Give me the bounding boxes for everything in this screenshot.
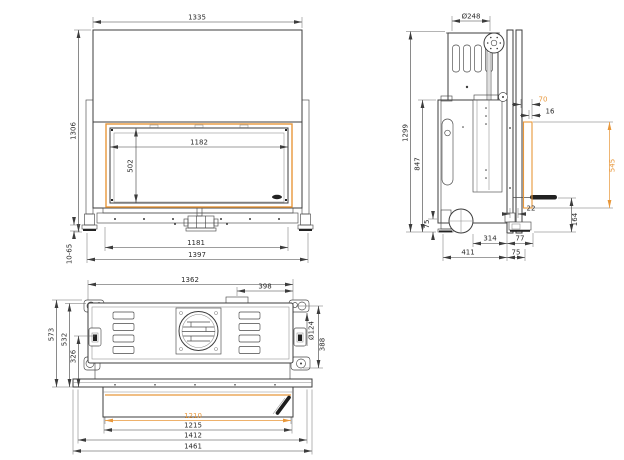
dim-label-top-front-depth: 326 [70, 349, 78, 363]
dim-label-frame-thickness: 16 [546, 108, 555, 116]
front-view: 1335 1306 1182 502 1181 [66, 14, 314, 265]
fan-assembly [176, 308, 221, 354]
dim-label-front-body-width: 1335 [188, 14, 206, 22]
dim-label-duct-diameter: Ø124 [308, 321, 316, 340]
dim-body-depth: 411 [443, 234, 507, 261]
side-front-foot [510, 230, 530, 232]
dim-label-frame-width: 1412 [184, 432, 202, 440]
handle-bar [530, 195, 557, 200]
dim-front-total-height: 1306 [70, 30, 92, 232]
pulley-wheel [484, 33, 504, 53]
dim-body-height: 847 [414, 100, 437, 232]
dim-label-glass-width: 1182 [190, 139, 208, 147]
dim-label-front-total-height: 1306 [70, 122, 78, 140]
dim-bottom-height: 164 [534, 198, 579, 232]
dim-label-feet-adjust-range: 10-65 [66, 244, 74, 264]
dim-duct-to-front: 314 [473, 234, 507, 261]
dim-label-top-glass-width: 1210 [184, 412, 202, 420]
dim-label-duct-to-front: 314 [483, 235, 497, 243]
center-foot-bracket [174, 208, 228, 231]
front-structure [82, 30, 313, 231]
side-rear-foot [439, 231, 452, 233]
dim-front-frame-depth: 77 [507, 233, 533, 247]
frame-plate-front [516, 30, 522, 233]
dim-label-bottom-height: 164 [571, 212, 579, 226]
dim-label-door-lift-travel: 545 [609, 159, 617, 172]
side-view: Ø248 1299 847 75 70 [402, 13, 617, 262]
side-structure [438, 30, 557, 233]
dim-label-glass-height: 502 [127, 159, 135, 172]
dim-label-door-width: 1215 [184, 422, 202, 430]
fan-plate [176, 308, 221, 354]
latch-right [294, 328, 306, 346]
dim-label-top-offset: 70 [539, 96, 548, 104]
dim-label-flue-diameter: Ø248 [462, 13, 481, 21]
technical-drawing: 1335 1306 1182 502 1181 [0, 0, 624, 460]
logo-badge [272, 195, 282, 199]
dim-flue-diameter: Ø248 [452, 13, 490, 32]
dim-label-total-depth: 573 [48, 328, 56, 341]
dim-label-flue-to-side: 398 [258, 283, 271, 291]
dim-label-side-depth: 388 [319, 338, 327, 351]
left-trim-rail [86, 100, 93, 214]
frame-plate-rear [507, 30, 513, 233]
dim-base-outer-width: 1397 [87, 233, 308, 263]
left-foot [83, 229, 96, 231]
dim-top-body-depth: 532 [61, 304, 87, 388]
front-frame-rail [73, 379, 312, 387]
latch-left [89, 328, 101, 346]
front-body-lower [93, 122, 302, 208]
dim-label-top-body-depth: 532 [61, 333, 69, 346]
dim-label-foot-height: 75 [423, 220, 431, 229]
dim-label-front-frame-depth: 77 [516, 235, 525, 243]
dim-duct-diameter: Ø124 [307, 313, 316, 346]
right-foot [299, 229, 312, 231]
dim-base-inner-width: 1181 [105, 227, 288, 251]
dim-front-depth: 75 [507, 249, 525, 262]
door-slide-track [524, 122, 533, 208]
dim-label-base-inner-width: 1181 [187, 239, 205, 247]
top-structure [73, 297, 312, 417]
dim-frame-thickness: 16 [520, 108, 555, 120]
dim-front-body-width: 1335 [93, 14, 302, 29]
dim-label-body-depth: 411 [461, 249, 474, 257]
dim-label-base-outer-width: 1397 [188, 251, 206, 259]
dim-label-side-total-height: 1299 [402, 124, 410, 142]
dim-label-bottom-gap: 22 [527, 205, 536, 213]
dim-foot-height: 75 [423, 211, 437, 240]
right-trim-rail [302, 100, 309, 214]
top-view: 1362 398 573 532 326 [48, 276, 327, 455]
dim-label-total-width: 1461 [184, 443, 202, 451]
dim-feet-adjust-range: 10-65 [66, 217, 81, 264]
drawing-page: 1335 1306 1182 502 1181 [0, 0, 624, 460]
front-body-upper [93, 30, 302, 122]
counterweight-channel [473, 100, 502, 192]
dim-label-front-depth: 75 [512, 249, 521, 257]
flue-tab [226, 297, 248, 303]
dim-label-top-body-width: 1362 [181, 276, 199, 284]
dim-label-body-height: 847 [414, 157, 422, 170]
